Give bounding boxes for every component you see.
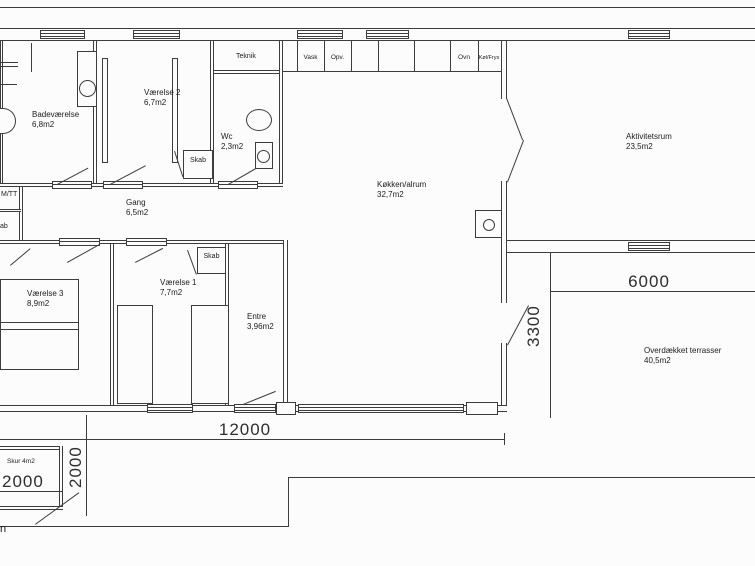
cabinet-divider [351, 41, 352, 71]
entrance-door [276, 402, 296, 415]
room-name: Værelse 3 [27, 289, 63, 299]
terrace-edge-line [0, 526, 289, 527]
window [297, 30, 343, 39]
door-swing [243, 391, 276, 405]
wardrobe [191, 305, 229, 404]
room-area: 7,7m2 [160, 288, 196, 298]
cabinet-divider [378, 41, 379, 71]
dim-label-3300: 3300 [524, 297, 544, 347]
room-name: Gang [126, 198, 148, 208]
dim-label-6000: 6000 [604, 272, 694, 292]
dim-line-3300 [550, 253, 551, 418]
cabinet-front-line [283, 71, 501, 72]
shower-partition [31, 43, 32, 72]
room-label-badevaerelse: Badeværelse 6,8m2 [32, 110, 79, 131]
window-glazing [298, 404, 464, 413]
appliance-label-ovn: Ovn [450, 54, 478, 62]
room-area: 23,5m2 [626, 142, 672, 152]
room-area: 32,7m2 [377, 190, 426, 200]
room-name: Badeværelse [32, 110, 79, 120]
door-swing [135, 248, 163, 263]
closet-label-upper: Skab [183, 157, 213, 165]
wall [0, 183, 52, 187]
room-name: Værelse 2 [144, 88, 180, 98]
bathtub [0, 108, 16, 134]
partial-text-bottom-left: n [0, 523, 6, 535]
partial-text-mtt: M/TT [1, 191, 17, 199]
room-area: 6,7m2 [144, 98, 180, 108]
room-name: Wc [221, 132, 243, 142]
room-area: 2,3m2 [221, 142, 243, 152]
door-swing [67, 244, 100, 263]
door-swing [174, 151, 183, 177]
shelf-line [0, 84, 17, 85]
vanity-cabinet [77, 51, 97, 107]
window [628, 242, 670, 251]
room-name: Køkken/alrum [377, 180, 426, 190]
terrace-edge-line [288, 477, 755, 478]
wall [92, 183, 103, 187]
room-label-koekken: Køkken/alrum 32,7m2 [377, 180, 426, 201]
wall [0, 240, 59, 244]
bed-line [0, 322, 79, 323]
appliance-label-koel-frys: Køl/Frys [477, 55, 501, 61]
dim-tick [504, 433, 505, 445]
room-area: 3,96m2 [247, 322, 274, 332]
bed-line [0, 329, 79, 330]
appliance-label-vask: Vask [297, 54, 324, 62]
window [40, 30, 85, 39]
room-name: Aktivitetsrum [626, 132, 672, 142]
wall [501, 253, 507, 303]
wall [501, 41, 507, 99]
wall [283, 240, 288, 407]
cabinet-divider [414, 41, 415, 71]
closet-label-lower: Skab [197, 253, 226, 261]
wall [501, 343, 507, 405]
room-label-entre: Entre 3,96m2 [247, 312, 274, 333]
door-swing [10, 248, 31, 265]
window [366, 30, 409, 39]
room-area: 40,5m2 [644, 356, 721, 366]
shelf-line [0, 62, 18, 63]
door-threshold [126, 238, 167, 246]
room-label-wc: Wc 2,3m2 [221, 132, 243, 153]
room-area: 6,8m2 [32, 120, 79, 130]
window [234, 404, 276, 413]
room-label-vaerelse3: Værelse 3 8,9m2 [27, 289, 63, 310]
dim-label-2000-vertical: 2000 [66, 442, 86, 488]
wall-teknik-wc [214, 70, 279, 74]
room-label-vaerelse1: Værelse 1 7,7m2 [160, 278, 196, 299]
door-threshold [218, 181, 258, 189]
room-name: Teknik [236, 53, 256, 61]
wall [258, 183, 283, 187]
scan-edge-line [0, 7, 755, 8]
room-label-vaerelse2: Værelse 2 6,7m2 [144, 88, 180, 109]
washbasin-icon [246, 109, 272, 131]
fireplace-flue-icon [483, 219, 495, 231]
room-label-terrasse: Overdækket terrasser 40,5m2 [644, 346, 721, 367]
floor-plan: Badeværelse 6,8m2 Værelse 2 6,7m2 Teknik… [0, 0, 755, 566]
room-label-teknik: Teknik [236, 53, 256, 61]
room-label-aktivitetsrum: Aktivitetsrum 23,5m2 [626, 132, 672, 153]
door-swing [507, 140, 524, 182]
wall-pier [466, 402, 498, 415]
dim-label-2000-horizontal: 2000 [2, 472, 44, 492]
room-area: 6,5m2 [126, 208, 148, 218]
room-area: 8,9m2 [27, 299, 63, 309]
wardrobe [172, 58, 178, 163]
sink-icon [79, 80, 96, 97]
wall-skur [0, 446, 63, 450]
window [133, 30, 180, 39]
window [628, 30, 670, 39]
terrace-edge-line [288, 477, 289, 527]
wall [0, 209, 21, 212]
toilet-bowl-icon [257, 150, 270, 163]
door-swing [187, 250, 197, 275]
room-name: Værelse 1 [160, 278, 196, 288]
dim-line-2000-vertical [86, 415, 87, 516]
room-label-gang: Gang 6,5m2 [126, 198, 148, 219]
room-name: Skur 4m2 [7, 458, 35, 466]
wardrobe [102, 58, 108, 163]
door-threshold [103, 181, 143, 189]
wall-skur [59, 446, 63, 510]
shelf-line [0, 66, 18, 67]
window [147, 404, 193, 413]
wall [279, 41, 283, 187]
door-threshold [59, 238, 100, 246]
room-name: Entre [247, 312, 274, 322]
dim-label-12000: 12000 [200, 420, 290, 440]
appliance-label-opv: Opv. [324, 54, 351, 62]
partial-text-skab: ab [0, 223, 8, 231]
wardrobe [117, 305, 153, 404]
door-swing [506, 98, 523, 140]
wall [110, 244, 114, 405]
wall [19, 187, 23, 240]
room-name: Overdækket terrasser [644, 346, 721, 356]
wall [143, 183, 218, 187]
room-label-skur: Skur 4m2 [7, 458, 35, 466]
